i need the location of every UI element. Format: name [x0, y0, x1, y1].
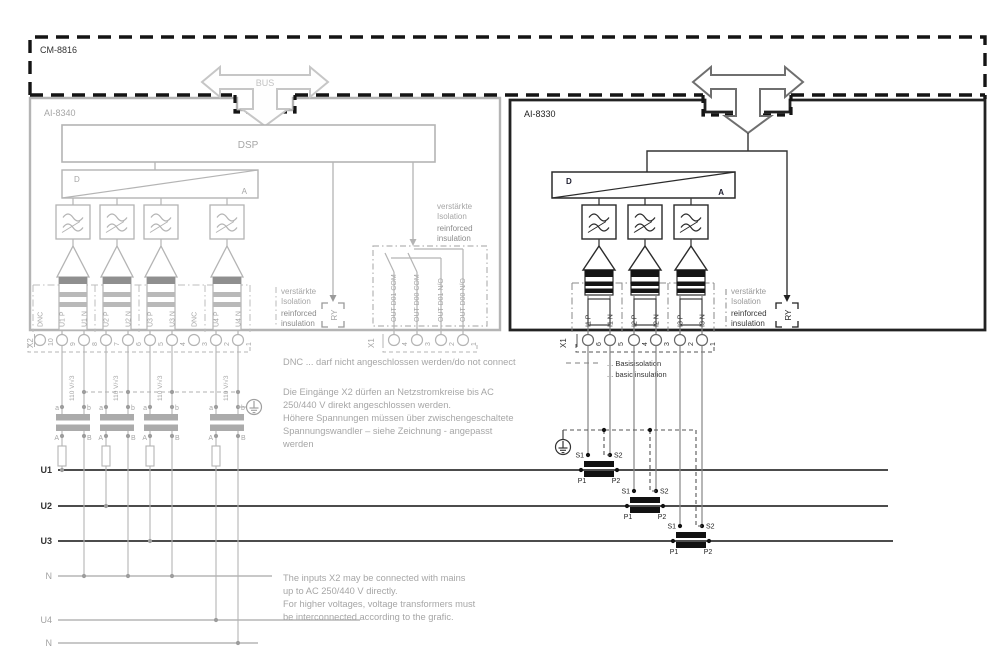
filter-icon	[100, 205, 134, 239]
terminal-signal-label: U2 P	[104, 311, 111, 327]
line-junction-dot	[104, 504, 108, 508]
note-en-3: For higher voltages, voltage transformer…	[283, 599, 476, 609]
ins-l-3: reinforced	[281, 309, 317, 318]
terminal-number: 7	[114, 342, 121, 346]
junction-dot	[170, 390, 174, 394]
voltage-transformer-2: 110 V/√3abAB	[98, 346, 136, 579]
ct-s1-label: S1	[621, 489, 630, 496]
terminal-number: 8	[92, 342, 99, 346]
vt-terminal-A-dot	[148, 434, 152, 438]
terminal-4	[167, 335, 178, 346]
vt-terminal-a-dot	[148, 405, 152, 409]
ct-bar	[584, 461, 614, 467]
ct-s1-dot	[678, 524, 682, 528]
transformer-cap	[59, 277, 87, 284]
transformer-winding	[213, 292, 241, 297]
earth-ground-icon	[247, 400, 262, 415]
ct-s1-dot	[586, 453, 590, 457]
ins-r1-4: insulation	[437, 234, 471, 243]
vt-terminal-b: b	[241, 405, 245, 412]
vt-terminal-a-dot	[60, 405, 64, 409]
terminal-signal-label: DNC	[38, 312, 45, 327]
transformer-winding	[585, 282, 613, 287]
terminal-signal-label: I3 N	[700, 314, 707, 327]
vt-terminal-A: A	[142, 435, 147, 442]
bus-arrow-right	[693, 67, 803, 133]
transformer-cap	[147, 277, 175, 284]
vt-terminal-A: A	[98, 435, 103, 442]
transformer-winding	[677, 282, 705, 287]
terminal-signal-label: U3 P	[148, 311, 155, 327]
vt-terminal-a: a	[99, 405, 103, 412]
note-de-2: 250/440 V direkt angeschlossen werden.	[283, 400, 451, 410]
dsp-block: DSP	[62, 125, 435, 162]
note-de-3: Höhere Spannungen müssen über zwischenge…	[283, 413, 514, 423]
ins-r1-3: reinforced	[437, 224, 473, 233]
terminal-number: 6	[596, 342, 603, 346]
label-u1: U1	[40, 465, 52, 475]
transformer-winding	[59, 302, 87, 307]
ct-p1-label: P1	[670, 549, 679, 556]
isolation-amp-icon	[583, 246, 615, 270]
x2-row-label: X2	[26, 338, 35, 348]
vt-terminal-b-dot	[170, 405, 174, 409]
transformer-cap	[631, 270, 659, 277]
vt-terminal-A: A	[208, 435, 213, 442]
isolation-amp-icon	[211, 246, 243, 277]
vt-terminal-b-dot	[82, 405, 86, 409]
junction-dot	[236, 390, 240, 394]
filter-icon	[144, 205, 178, 239]
terminal-1	[697, 335, 708, 346]
relay-output-block: OUT D01 COM OUT D00 COM OUT D01 N/O OUT …	[373, 246, 487, 335]
ct-bar	[630, 507, 660, 513]
ins-rr-4: insulation	[731, 319, 765, 328]
vt-terminal-a-dot	[214, 405, 218, 409]
vt-winding	[144, 425, 178, 432]
dsp-label: DSP	[238, 140, 259, 151]
dac-left-a: A	[242, 187, 248, 196]
diagram-canvas: CM-8816 BUS AI-8340 AI-8330 DSP D A D A	[0, 0, 1000, 668]
ct-bar	[630, 497, 660, 503]
voltage-transformer-4: 110 V/√3abAB	[208, 346, 246, 646]
earth-ground-icon	[556, 440, 571, 455]
ct-s2-label: S2	[706, 524, 715, 531]
note-dnc: DNC ... darf nicht angeschlossen werden/…	[283, 357, 516, 367]
label-n2: N	[46, 638, 53, 648]
label-u2: U2	[40, 501, 52, 511]
note-de-4: Spannungswandler – siehe Zeichnung - ang…	[283, 426, 493, 436]
dac-right-a: A	[718, 188, 724, 197]
junction-dot	[648, 428, 652, 432]
fuse-icon	[212, 446, 220, 466]
terminal-number: 5	[158, 342, 165, 346]
ct-p2-dot	[707, 539, 711, 543]
terminal-6	[583, 335, 594, 346]
ct-bar	[584, 471, 614, 477]
vt-terminal-B-dot	[236, 434, 240, 438]
dac-left-d: D	[74, 175, 80, 184]
vt-rating-label: 110 V/√3	[156, 375, 164, 401]
voltage-transformer-1: 110 V/√3abAB	[54, 346, 92, 579]
ct-p2-dot	[615, 468, 619, 472]
filter-icon	[56, 205, 90, 239]
terminal-7	[101, 335, 112, 346]
ct-s1-label: S1	[575, 453, 584, 460]
arrow-to-ry-left	[330, 295, 337, 302]
vt-terminal-B-dot	[170, 434, 174, 438]
terminal-2	[211, 335, 222, 346]
neutral-junction-dot	[82, 574, 86, 578]
transformer-winding	[103, 292, 131, 297]
vt-rating-label: 110 V/√3	[222, 375, 230, 401]
relay-out-d01-com: OUT D01 COM	[391, 274, 398, 322]
transformer-winding	[585, 289, 613, 294]
terminal-4	[629, 335, 640, 346]
terminal-signal-label: I1 N	[608, 314, 615, 327]
transformer-winding	[103, 302, 131, 307]
legend-basic-insulation: ... basic insulation	[607, 370, 667, 379]
neutral-junction-dot	[170, 574, 174, 578]
terminal-signal-label: U1 P	[60, 311, 67, 327]
current-input-channel-3	[674, 198, 708, 335]
basic-insulation-legend: ... Basisisolation ... basic insulation	[566, 359, 667, 379]
note-en-2: up to AC 250/440 V directly.	[283, 586, 398, 596]
vt-winding	[210, 414, 244, 421]
ins-r1-2: Isolation	[437, 212, 467, 221]
label-u3: U3	[40, 536, 52, 546]
neutral-junction-dot	[126, 574, 130, 578]
transformer-winding	[677, 289, 705, 294]
terminal-6	[123, 335, 134, 346]
terminal-number: 3	[664, 342, 671, 346]
ct-p1-dot	[671, 539, 675, 543]
ins-rr-3: reinforced	[731, 309, 767, 318]
terminal-5	[145, 335, 156, 346]
current-transformer-3: S1S2P1P2	[667, 524, 714, 557]
isolation-amp-icon	[145, 246, 177, 277]
ins-l-1: verstärkte	[281, 287, 317, 296]
filter-icon	[582, 205, 616, 239]
vt-terminal-A-dot	[214, 434, 218, 438]
bus-label: BUS	[256, 78, 275, 88]
x1-relay-terminal-row: 4321	[389, 335, 479, 347]
terminal-1	[458, 335, 469, 346]
vt-terminal-a: a	[143, 405, 147, 412]
current-transformer-1: S1S2P1P2	[575, 453, 622, 486]
terminal-number: 4	[642, 342, 649, 346]
terminal-number: 2	[449, 342, 456, 346]
x1-relay-row-label: X1	[367, 338, 376, 348]
ry-right-label: RY	[784, 309, 793, 321]
terminal-signal-label: I2 N	[654, 314, 661, 327]
arrow-to-relay	[410, 239, 417, 246]
vt-terminal-B: B	[241, 435, 246, 442]
bus-arrow-left: BUS	[202, 67, 328, 126]
line-junction-dot	[214, 618, 218, 622]
current-input-channel-1	[582, 198, 616, 335]
frame-label: CM-8816	[40, 45, 77, 55]
note-de-1: Die Eingänge X2 dürfen an Netzstromkreis…	[283, 387, 494, 397]
vt-winding	[100, 425, 134, 432]
terminal-3	[412, 335, 423, 346]
transformer-cap	[677, 270, 705, 277]
vt-terminal-b-dot	[126, 405, 130, 409]
vt-terminal-a: a	[209, 405, 213, 412]
vt-terminal-B-dot	[82, 434, 86, 438]
ct-p2-label: P2	[612, 478, 621, 485]
x1-current-row-label: X1	[559, 338, 568, 348]
transformer-cap	[103, 277, 131, 284]
terminal-number: 2	[224, 342, 231, 346]
ct-p1-dot	[625, 504, 629, 508]
ct-s1-dot	[632, 489, 636, 493]
notes: DNC ... darf nicht angeschlossen werden/…	[282, 357, 516, 622]
terminal-number: 5	[618, 342, 625, 346]
arrow-to-ry-right	[784, 295, 791, 302]
terminal-1	[233, 335, 244, 346]
vt-winding	[56, 425, 90, 432]
current-transformer-2: S1S2P1P2	[621, 489, 668, 522]
transformer-cap	[213, 277, 241, 284]
transformer-winding	[213, 302, 241, 307]
insulation-note-relay: verstärkte Isolation reinforced insulati…	[437, 202, 473, 243]
frame-border	[30, 37, 985, 115]
ins-rr-2: Isolation	[731, 297, 761, 306]
ct-s2-label: S2	[660, 489, 669, 496]
terminal-signal-label: U3 N	[170, 311, 177, 327]
terminal-signal-label: DNC	[192, 312, 199, 327]
terminal-10	[35, 335, 46, 346]
terminal-3	[651, 335, 662, 346]
ct-s2-label: S2	[614, 453, 623, 460]
dac-strip-left: D A	[62, 170, 258, 198]
terminal-number: 3	[202, 342, 209, 346]
fuse-icon	[102, 446, 110, 466]
ins-r1-1: verstärkte	[437, 202, 473, 211]
vt-winding	[210, 425, 244, 432]
transformer-winding	[631, 289, 659, 294]
ct-p1-label: P1	[624, 514, 633, 521]
vt-terminal-a-dot	[104, 405, 108, 409]
terminal-2	[675, 335, 686, 346]
ins-l-4: insulation	[281, 319, 315, 328]
isolation-amp-icon	[101, 246, 133, 277]
ct-p2-dot	[661, 504, 665, 508]
terminal-signal-label: U1 N	[82, 311, 89, 327]
fuse-icon	[146, 446, 154, 466]
vt-terminal-B-dot	[126, 434, 130, 438]
voltage-transformer-3: 110 V/√3abAB	[142, 346, 180, 579]
filter-icon	[628, 205, 662, 239]
current-input-channel-2	[628, 198, 662, 335]
insulation-note-right: verstärkte Isolation reinforced insulati…	[726, 287, 767, 328]
terminal-signal-label: U4 P	[214, 311, 221, 327]
vt-winding	[144, 414, 178, 421]
ins-l-2: Isolation	[281, 297, 311, 306]
transformer-winding	[147, 302, 175, 307]
terminal-signal-label: I3 P	[678, 314, 685, 327]
insulation-note-left: verstärkte Isolation reinforced insulati…	[276, 287, 317, 328]
isolation-amp-icon	[675, 246, 707, 270]
isolation-amp-icon	[629, 246, 661, 270]
ct-p1-label: P1	[578, 478, 587, 485]
vt-terminal-b: b	[131, 405, 135, 412]
terminal-number: 2	[688, 342, 695, 346]
terminal-number: 6	[136, 342, 143, 346]
vt-terminal-B: B	[175, 435, 180, 442]
terminal-number: 4	[402, 342, 409, 346]
label-u4: U4	[40, 615, 52, 625]
terminal-number: 3	[425, 342, 432, 346]
ct-bar	[676, 542, 706, 548]
junction-dot	[602, 428, 606, 432]
transformer-cap	[585, 270, 613, 277]
vt-terminal-a: a	[55, 405, 59, 412]
terminal-5	[605, 335, 616, 346]
vt-rating-label: 110 V/√3	[112, 375, 120, 401]
label-n1: N	[46, 571, 53, 581]
earth-drop	[696, 430, 702, 526]
ct-p1-dot	[579, 468, 583, 472]
vt-terminal-b: b	[175, 405, 179, 412]
vt-terminal-A-dot	[104, 434, 108, 438]
relay-out-d00-no: OUT D00 N/O	[460, 278, 467, 322]
ry-left-label: RY	[330, 309, 339, 321]
line-junction-dot	[60, 468, 64, 472]
wiring-diagram-svg: CM-8816 BUS AI-8340 AI-8330 DSP D A D A	[0, 0, 1000, 668]
isolation-amp-icon	[57, 246, 89, 277]
note-en-1: The inputs X2 may be connected with main…	[283, 573, 466, 583]
vt-terminal-B: B	[87, 435, 92, 442]
vt-winding	[100, 414, 134, 421]
terminal-signal-label: I1 P	[586, 314, 593, 327]
terminal-3	[189, 335, 200, 346]
power-line-labels: U1 U2 U3 N U4 N	[40, 465, 52, 648]
terminal-number: 1	[710, 342, 717, 346]
vt-terminal-A-dot	[60, 434, 64, 438]
terminal-number: 10	[48, 338, 55, 346]
ct-s1-label: S1	[667, 524, 676, 531]
filter-icon	[210, 205, 244, 239]
vt-winding	[56, 414, 90, 421]
right-module-label: AI-8330	[524, 109, 556, 119]
junction-dot	[126, 390, 130, 394]
terminal-signal-label: U2 N	[126, 311, 133, 327]
relay-out-d00-com: OUT D00 COM	[414, 274, 421, 322]
earth-drop	[604, 430, 610, 455]
relay-out-d01-no: OUT D01 N/O	[438, 278, 445, 322]
transformer-winding	[631, 282, 659, 287]
transformer-winding	[59, 292, 87, 297]
filter-icon	[674, 205, 708, 239]
vt-terminal-A: A	[54, 435, 59, 442]
vt-terminal-B: B	[131, 435, 136, 442]
transformer-winding	[147, 292, 175, 297]
terminal-8	[79, 335, 90, 346]
terminal-signal-label: I2 P	[632, 314, 639, 327]
terminal-number: 1	[246, 342, 253, 346]
fuse-icon	[58, 446, 66, 466]
terminal-number: 9	[70, 342, 77, 346]
junction-dot	[82, 390, 86, 394]
terminal-signal-label: U4 N	[236, 311, 243, 327]
left-module-label: AI-8340	[44, 108, 76, 118]
line-junction-dot	[148, 539, 152, 543]
terminal-number: 4	[180, 342, 187, 346]
ct-bar	[676, 532, 706, 538]
dac-right-d: D	[566, 177, 572, 186]
ins-rr-1: verstärkte	[731, 287, 767, 296]
vt-terminal-b: b	[87, 405, 91, 412]
neutral-junction-dot	[236, 641, 240, 645]
ct-p2-label: P2	[704, 549, 713, 556]
earth-drop	[650, 430, 656, 491]
terminal-2	[436, 335, 447, 346]
vt-rating-label: 110 V/√3	[68, 375, 76, 401]
terminal-9	[57, 335, 68, 346]
terminal-4	[389, 335, 400, 346]
note-de-5: werden	[282, 439, 314, 449]
ct-p2-label: P2	[658, 514, 667, 521]
terminal-number: 1	[471, 342, 478, 346]
